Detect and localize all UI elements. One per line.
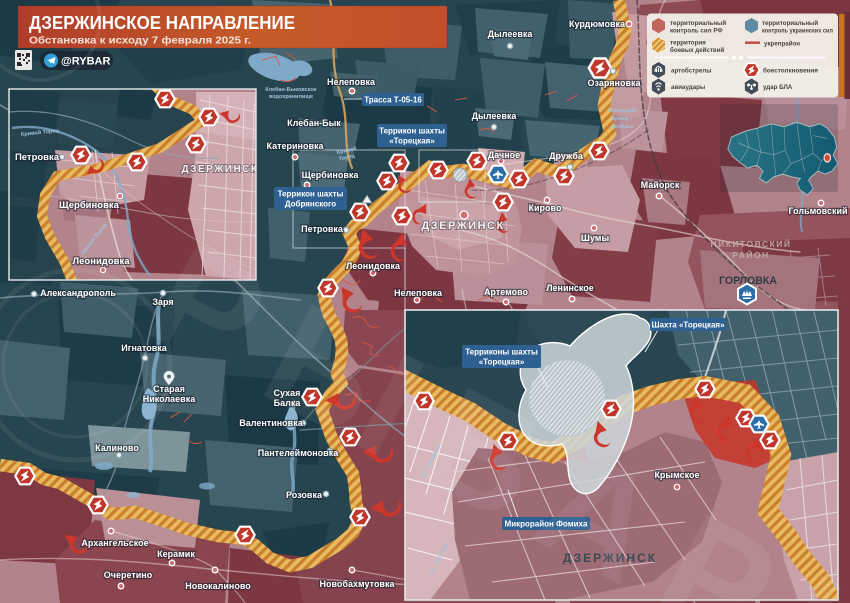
- svg-text:Очеретино: Очеретино: [104, 570, 153, 580]
- svg-text:Курдюмовка: Курдюмовка: [569, 19, 626, 29]
- svg-text:ДЗЕРЖИНСК: ДЗЕРЖИНСК: [182, 164, 259, 175]
- svg-text:Керамик: Керамик: [157, 549, 195, 559]
- svg-text:Донец –: Донец –: [611, 116, 633, 122]
- svg-text:Щербиновка: Щербиновка: [59, 200, 120, 211]
- svg-text:боевых действий: боевых действий: [670, 47, 725, 54]
- svg-text:Северский: Северский: [607, 107, 636, 114]
- svg-text:Нелеповка: Нелеповка: [327, 77, 376, 87]
- svg-text:Трасса Т-05-16: Трасса Т-05-16: [364, 96, 422, 105]
- svg-text:территориальный: территориальный: [762, 20, 818, 27]
- svg-text:Террикон шахты: Террикон шахты: [278, 190, 344, 199]
- svg-text:Артемово: Артемово: [484, 287, 529, 297]
- svg-text:ДЗЕРЖИНСКОЕ НАПРАВЛЕНИЕ: ДЗЕРЖИНСКОЕ НАПРАВЛЕНИЕ: [29, 13, 295, 33]
- svg-text:авиаудары: авиаудары: [671, 84, 705, 91]
- svg-text:контроль сил РФ: контроль сил РФ: [670, 28, 723, 35]
- svg-text:Гольмовский: Гольмовский: [788, 206, 847, 216]
- svg-text:Террикон шахты: Террикон шахты: [379, 127, 445, 136]
- svg-text:артобстрелы: артобстрелы: [671, 68, 712, 75]
- svg-text:Клебан-Бык: Клебан-Бык: [287, 118, 341, 128]
- svg-text:Шумы: Шумы: [581, 233, 610, 243]
- svg-text:«Торецкая»: «Торецкая»: [389, 137, 435, 146]
- svg-text:Нелеповка: Нелеповка: [394, 288, 443, 298]
- svg-text:территория: территория: [670, 40, 706, 47]
- svg-text:Николаевка: Николаевка: [143, 394, 196, 404]
- svg-text:водохранилище: водохранилище: [269, 94, 313, 100]
- svg-text:Петровка: Петровка: [15, 152, 60, 163]
- svg-text:Озаряновка: Озаряновка: [588, 78, 642, 88]
- svg-text:Майорск: Майорск: [641, 180, 680, 190]
- svg-text:Новокалиново: Новокалиново: [185, 581, 251, 591]
- svg-text:Дылеевка: Дылеевка: [472, 111, 518, 121]
- svg-text:территориальный: территориальный: [670, 20, 726, 27]
- svg-text:Ленинское: Ленинское: [546, 283, 594, 293]
- svg-text:Щербиновка: Щербиновка: [302, 170, 360, 180]
- svg-text:Новобахмутовка: Новобахмутовка: [320, 579, 396, 589]
- svg-text:Петровка: Петровка: [301, 224, 344, 234]
- svg-text:Клебан-Быковское: Клебан-Быковское: [265, 86, 316, 93]
- svg-text:Дружба: Дружба: [549, 151, 584, 161]
- svg-text:Розовка: Розовка: [286, 490, 323, 500]
- svg-text:Архангельское: Архангельское: [81, 538, 148, 548]
- svg-text:НИКИТОВСКИЙ: НИКИТОВСКИЙ: [711, 238, 792, 249]
- svg-text:укрепрайон: укрепрайон: [764, 41, 800, 48]
- svg-text:Донбасс: Донбасс: [610, 123, 633, 130]
- svg-text:удар БЛА: удар БЛА: [763, 84, 793, 91]
- svg-text:Шахта «Торецкая»: Шахта «Торецкая»: [651, 321, 725, 330]
- svg-text:Катериновка: Катериновка: [266, 141, 324, 151]
- svg-text:Дылеевка: Дылеевка: [488, 29, 534, 39]
- svg-text:Леонидовка: Леонидовка: [72, 256, 130, 267]
- svg-text:Добрянского: Добрянского: [285, 200, 336, 209]
- svg-text:РАЙОН: РАЙОН: [732, 249, 769, 260]
- svg-text:Леонидовка: Леонидовка: [346, 261, 401, 271]
- svg-text:Дачное: Дачное: [488, 150, 520, 160]
- svg-text:контроль украинских сил: контроль украинских сил: [762, 28, 833, 35]
- svg-text:ДЗЕРЖИНСК: ДЗЕРЖИНСК: [421, 220, 504, 232]
- svg-text:Обстановка к исходу 7 февраля: Обстановка к исходу 7 февраля 2025 г.: [29, 35, 251, 47]
- svg-text:Кирово: Кирово: [529, 203, 562, 213]
- svg-text:боестолкновения: боестолкновения: [763, 68, 818, 75]
